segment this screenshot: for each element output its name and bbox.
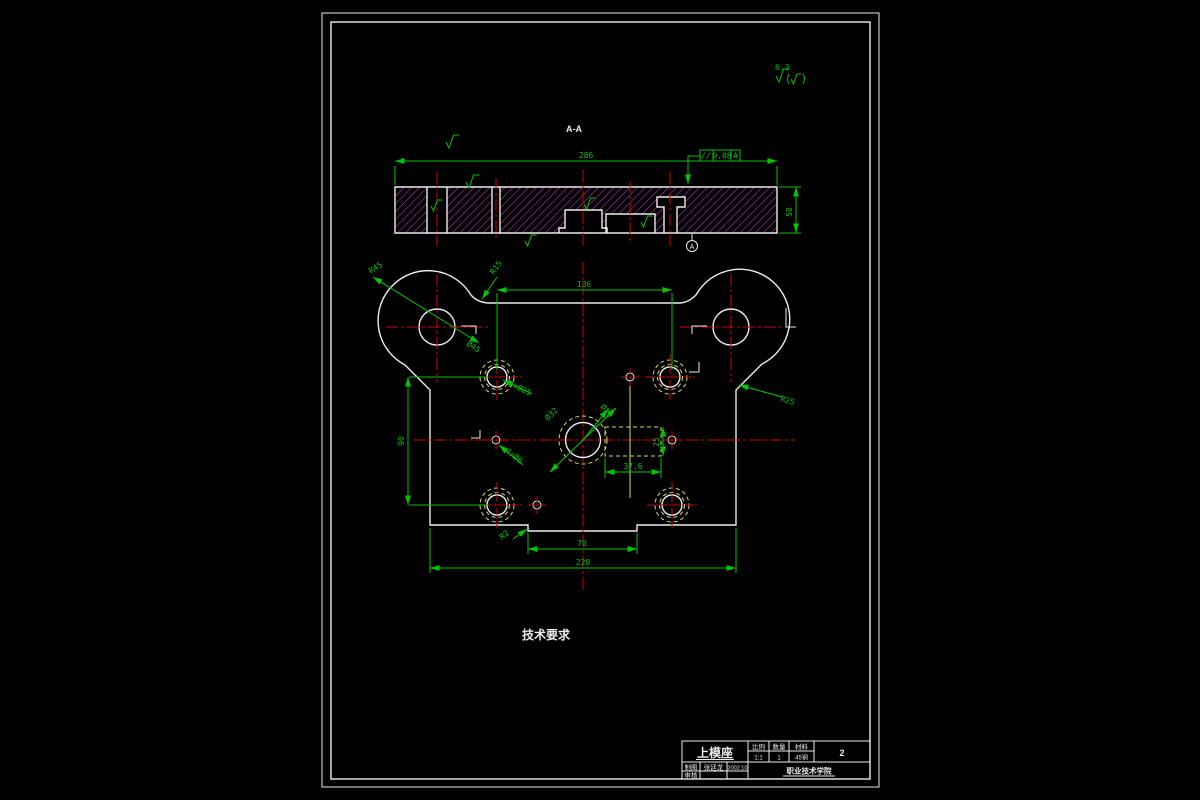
label-center-hole: Ø32 [542,405,559,422]
label-fillet: R15 [488,259,504,276]
roughness-icon [641,216,653,227]
dim-guide-span-v: 90 [397,377,488,505]
leader-step-fillet: R2 [498,528,527,541]
dim-220: 220 [576,558,591,567]
label-small-holes: 4xØ6 [504,446,525,466]
label-ear-radius: R45 [367,260,384,276]
title-row2-label: 审核 [685,771,699,780]
title-org: 职业技术学院 [787,766,832,776]
plan-view: 136 90 70 220 37.6 [367,259,796,592]
corner-roughness-value: 6.3 [775,63,790,72]
part-name: 上模座 [697,745,733,760]
cad-canvas: A-A 286 // 0.08 A [0,0,1200,800]
title-val-scale: 1:1 [754,756,763,762]
sheet-outer-border [322,13,879,787]
datum-flag-label: A [690,244,695,251]
label-side-radius: R25 [779,394,796,407]
title-col-qty: 数量 [773,742,787,751]
leader-small-holes: 4xØ6 [499,445,525,466]
section-body [395,187,777,233]
title-block: 上模座 比例 数量 材料 1:1 1 45钢 2 制图 张廷龙 2002.10 … [682,741,870,780]
section-view: A-A 286 // 0.08 A [395,124,801,252]
leader-fillet: R15 [482,259,504,299]
leader-guide-holes: 4xØ25 [503,378,533,398]
sheet-frame [322,13,879,787]
title-row1-label: 制图 [685,763,698,772]
title-row1-date: 2002.10 [728,766,748,772]
leader-side-radius: R25 [739,385,796,407]
section-dim-height: 50 [779,187,801,233]
tolerance-frame: // 0.08 A [688,150,740,184]
roughness-icon [525,235,537,246]
guide-hole [645,354,695,400]
dim-pocket: 37.6 25 [605,427,663,478]
datum-flag: A [687,234,698,252]
guide-hole [647,482,697,528]
title-col-material: 材料 [795,742,809,751]
title-val-qty: 1 [777,756,781,762]
plan-body-outline [378,269,790,531]
dim-section-height: 50 [785,207,794,217]
dim-136: 136 [577,280,592,289]
label-ear-hole: Ø45 [465,338,483,354]
tolerance-value: 0.08 [712,152,731,161]
tech-requirements-title: 技术要求 [522,627,571,642]
dim-25: 25 [652,437,661,447]
dim-section-width: 286 [579,151,594,160]
section-view-label: A-A [566,124,582,134]
corner-roughness: 6.3 [775,63,805,84]
roughness-icon [446,135,460,148]
dim-37-6: 37.6 [623,462,642,471]
dim-70: 70 [577,539,587,548]
roughness-icon [791,74,802,84]
label-guide-holes: 4xØ25 [507,378,533,398]
title-val-material: 45钢 [795,754,808,762]
tolerance-datum: A [733,152,738,161]
title-row1-name: 张廷龙 [704,763,724,772]
dim-90: 90 [397,436,406,446]
title-col-scale: 比例 [752,742,765,751]
roughness-icon [466,175,480,188]
tolerance-symbol: // [701,152,711,161]
dim-guide-span-h: 136 [497,280,672,370]
label-step-fillet: R2 [498,528,511,541]
title-sheet-no: 2 [839,748,844,758]
